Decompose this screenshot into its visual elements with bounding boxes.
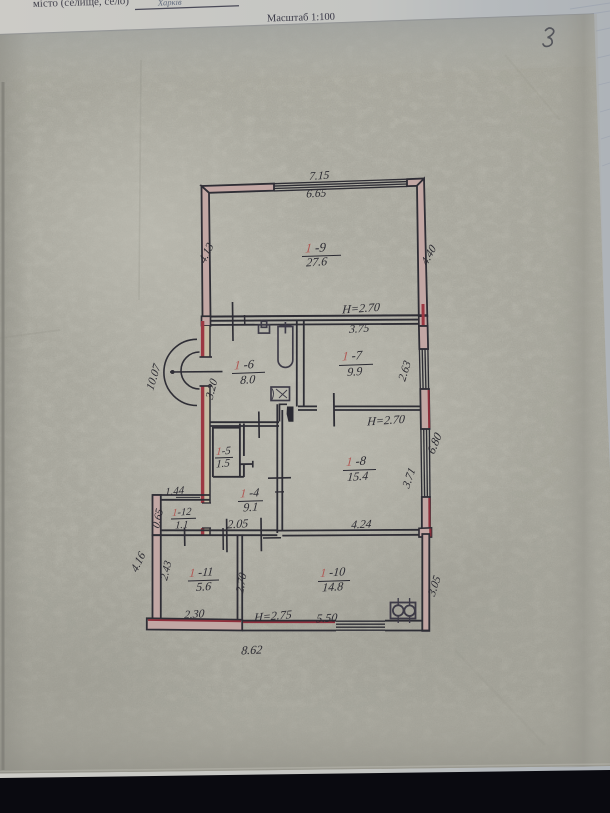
svg-text:Н=2.70: Н=2.70	[341, 300, 381, 317]
svg-text:2.30: 2.30	[184, 608, 205, 621]
svg-text:1.5: 1.5	[216, 457, 231, 470]
svg-text:Масштаб 1:100: Масштаб 1:100	[267, 12, 335, 25]
svg-text:8.0: 8.0	[240, 372, 256, 387]
svg-text:Н=2.70: Н=2.70	[366, 412, 406, 429]
svg-text:1.44: 1.44	[165, 484, 185, 498]
svg-text:7.15: 7.15	[309, 170, 330, 183]
svg-text:1 -8: 1 -8	[346, 454, 367, 469]
svg-text:Харків: Харків	[157, 0, 182, 8]
svg-text:27.6: 27.6	[306, 254, 328, 269]
svg-text:1 -7: 1 -7	[342, 348, 363, 363]
svg-text:9.1: 9.1	[243, 499, 259, 514]
svg-text:1 -6: 1 -6	[234, 357, 255, 372]
svg-text:14.8: 14.8	[322, 579, 344, 594]
svg-text:1 -10: 1 -10	[320, 564, 346, 580]
svg-text:3.75: 3.75	[348, 323, 370, 337]
svg-text:15.4: 15.4	[347, 469, 369, 484]
svg-text:8.62: 8.62	[241, 642, 263, 657]
svg-text:5.6: 5.6	[196, 579, 212, 594]
svg-text:6.65: 6.65	[306, 187, 327, 200]
svg-text:1.1: 1.1	[175, 520, 189, 532]
svg-text:1-5: 1-5	[216, 445, 232, 458]
svg-text:1 -11: 1 -11	[189, 564, 214, 580]
svg-text:1 -4: 1 -4	[240, 485, 260, 500]
svg-text:5.50: 5.50	[316, 610, 338, 625]
svg-text:2.05: 2.05	[227, 516, 249, 531]
svg-text:9.9: 9.9	[347, 364, 363, 379]
svg-text:1 -9: 1 -9	[305, 239, 327, 255]
svg-text:1-12: 1-12	[172, 507, 193, 519]
